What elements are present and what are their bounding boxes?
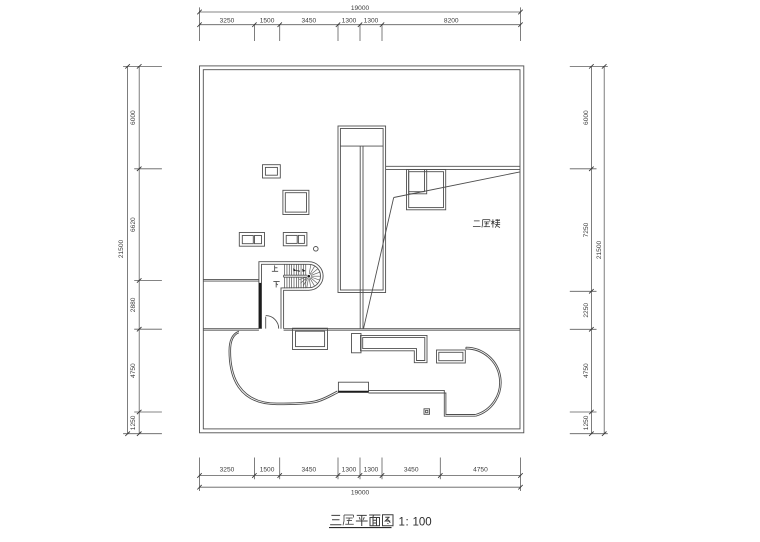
svg-text:4750: 4750	[583, 363, 590, 378]
svg-text:1300: 1300	[342, 18, 357, 25]
svg-text:19000: 19000	[351, 5, 370, 12]
svg-text:21500: 21500	[596, 241, 603, 260]
svg-text:100: 100	[413, 517, 432, 529]
svg-text:3250: 3250	[220, 18, 235, 25]
svg-text:8200: 8200	[444, 18, 459, 25]
svg-text:6000: 6000	[583, 110, 590, 125]
svg-text:21500: 21500	[118, 240, 125, 259]
svg-text:1250: 1250	[583, 415, 590, 430]
svg-text:1250: 1250	[130, 415, 137, 430]
svg-text:2880: 2880	[130, 297, 137, 312]
svg-text:3250: 3250	[220, 467, 235, 474]
svg-text:1500: 1500	[260, 18, 275, 25]
svg-text:1300: 1300	[364, 18, 379, 25]
svg-text::: :	[406, 517, 409, 529]
svg-text:1: 1	[399, 517, 405, 529]
svg-text:4750: 4750	[473, 467, 488, 474]
svg-text:19000: 19000	[351, 490, 370, 497]
svg-text:1300: 1300	[342, 467, 357, 474]
svg-text:2250: 2250	[583, 303, 590, 318]
svg-text:1300: 1300	[364, 467, 379, 474]
svg-text:6000: 6000	[130, 110, 137, 125]
svg-text:1500: 1500	[260, 467, 275, 474]
svg-text:3450: 3450	[302, 18, 317, 25]
svg-text:7250: 7250	[583, 222, 590, 237]
svg-text:3450: 3450	[404, 467, 419, 474]
svg-text:6620: 6620	[130, 217, 137, 232]
svg-text:3450: 3450	[302, 467, 317, 474]
svg-text:4750: 4750	[130, 363, 137, 378]
